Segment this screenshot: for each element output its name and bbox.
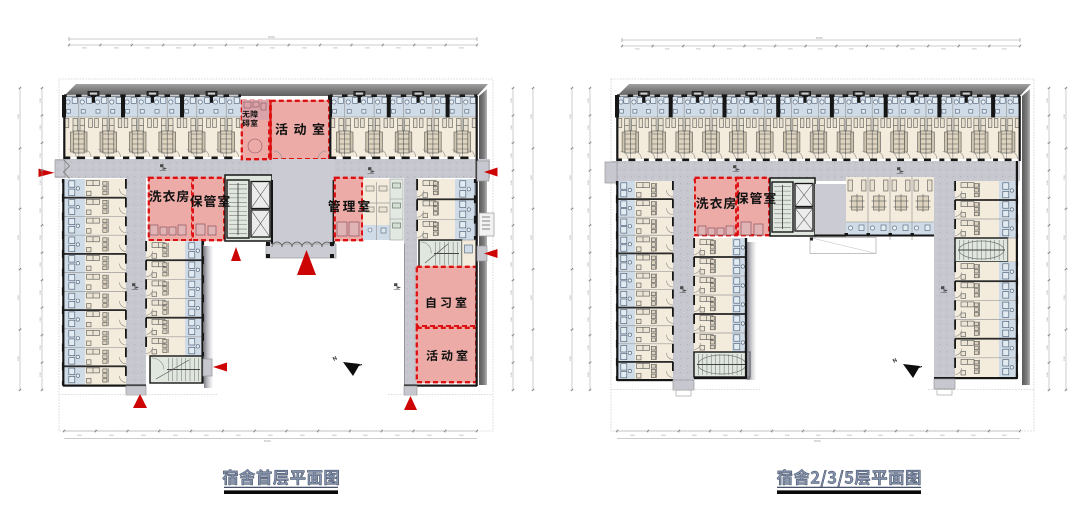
svg-text:3300: 3300 <box>1064 294 1066 300</box>
svg-text:3300: 3300 <box>40 371 42 377</box>
svg-text:3300: 3300 <box>511 261 513 267</box>
svg-text:3300: 3300 <box>588 124 590 130</box>
svg-text:3600: 3600 <box>754 435 760 437</box>
svg-text:3300: 3300 <box>531 113 533 119</box>
svg-text:3600: 3600 <box>1002 49 1008 51</box>
svg-text:3300: 3300 <box>588 344 590 350</box>
svg-text:3300: 3300 <box>40 97 42 103</box>
svg-text:3600: 3600 <box>630 435 636 437</box>
svg-text:3300: 3300 <box>18 174 20 180</box>
svg-text:3600: 3600 <box>661 435 667 437</box>
svg-text:3600: 3600 <box>363 435 369 437</box>
svg-text:3600: 3600 <box>173 435 179 437</box>
svg-text:3300: 3300 <box>1064 234 1066 240</box>
svg-text:3600: 3600 <box>204 435 210 437</box>
svg-text:3300: 3300 <box>570 234 572 240</box>
svg-text:3600: 3600 <box>1002 435 1008 437</box>
svg-text:3300: 3300 <box>588 261 590 267</box>
svg-text:3600: 3600 <box>332 435 338 437</box>
svg-text:3600: 3600 <box>459 48 465 50</box>
svg-text:3600: 3600 <box>878 435 884 437</box>
svg-text:3300: 3300 <box>588 316 590 322</box>
svg-text:3600: 3600 <box>818 49 824 51</box>
svg-text:3300: 3300 <box>531 355 533 361</box>
svg-text:3300: 3300 <box>511 344 513 350</box>
svg-text:50400: 50400 <box>814 440 821 443</box>
svg-text:3600: 3600 <box>239 48 245 50</box>
svg-text:3600: 3600 <box>141 435 147 437</box>
svg-text:3600: 3600 <box>459 435 465 437</box>
svg-text:3600: 3600 <box>880 49 886 51</box>
svg-text:3300: 3300 <box>511 316 513 322</box>
svg-text:3300: 3300 <box>1047 97 1049 103</box>
svg-text:3300: 3300 <box>1047 371 1049 377</box>
svg-text:3300: 3300 <box>40 179 42 185</box>
svg-text:3600: 3600 <box>847 435 853 437</box>
svg-text:3300: 3300 <box>511 179 513 185</box>
svg-text:3600: 3600 <box>145 48 151 50</box>
svg-text:3600: 3600 <box>971 435 977 437</box>
svg-text:3300: 3300 <box>18 294 20 300</box>
svg-text:3600: 3600 <box>365 48 371 50</box>
svg-text:3600: 3600 <box>909 435 915 437</box>
svg-text:3300: 3300 <box>18 113 20 119</box>
svg-text:3600: 3600 <box>665 49 671 51</box>
svg-text:3300: 3300 <box>1064 355 1066 361</box>
svg-text:3300: 3300 <box>570 355 572 361</box>
svg-text:3600: 3600 <box>427 48 433 50</box>
svg-text:3300: 3300 <box>570 174 572 180</box>
svg-text:3600: 3600 <box>268 435 274 437</box>
svg-text:3600: 3600 <box>635 49 641 51</box>
svg-text:3600: 3600 <box>910 49 916 51</box>
svg-text:3600: 3600 <box>696 49 702 51</box>
svg-text:3600: 3600 <box>849 49 855 51</box>
svg-text:3300: 3300 <box>588 179 590 185</box>
svg-text:3300: 3300 <box>570 294 572 300</box>
svg-text:3600: 3600 <box>816 435 822 437</box>
svg-text:3300: 3300 <box>511 124 513 130</box>
svg-text:3300: 3300 <box>40 124 42 130</box>
svg-text:3300: 3300 <box>531 294 533 300</box>
svg-text:3600: 3600 <box>176 48 182 50</box>
svg-text:3300: 3300 <box>1047 207 1049 213</box>
svg-text:3300: 3300 <box>40 261 42 267</box>
svg-text:3300: 3300 <box>18 234 20 240</box>
svg-text:50400: 50400 <box>816 37 823 40</box>
svg-text:3600: 3600 <box>114 48 120 50</box>
svg-text:3600: 3600 <box>302 48 308 50</box>
svg-text:3300: 3300 <box>588 97 590 103</box>
svg-text:3300: 3300 <box>511 289 513 295</box>
svg-text:3300: 3300 <box>1047 152 1049 158</box>
svg-text:3600: 3600 <box>788 49 794 51</box>
svg-text:3300: 3300 <box>1047 261 1049 267</box>
svg-text:3300: 3300 <box>40 344 42 350</box>
svg-text:3300: 3300 <box>1047 344 1049 350</box>
svg-text:3600: 3600 <box>236 435 242 437</box>
svg-text:3300: 3300 <box>588 152 590 158</box>
svg-text:3600: 3600 <box>300 435 306 437</box>
svg-text:3600: 3600 <box>940 435 946 437</box>
svg-text:3300: 3300 <box>1047 179 1049 185</box>
svg-text:50400: 50400 <box>264 440 271 443</box>
svg-text:3600: 3600 <box>427 435 433 437</box>
svg-text:3600: 3600 <box>757 49 763 51</box>
svg-text:3600: 3600 <box>692 435 698 437</box>
svg-text:3300: 3300 <box>1047 316 1049 322</box>
svg-text:3600: 3600 <box>396 48 402 50</box>
svg-text:3300: 3300 <box>570 113 572 119</box>
svg-text:3300: 3300 <box>511 234 513 240</box>
svg-text:3300: 3300 <box>588 207 590 213</box>
svg-text:3300: 3300 <box>40 234 42 240</box>
svg-text:3600: 3600 <box>109 435 115 437</box>
svg-text:3300: 3300 <box>1047 124 1049 130</box>
svg-text:3300: 3300 <box>511 97 513 103</box>
svg-text:3600: 3600 <box>270 48 276 50</box>
svg-text:3600: 3600 <box>785 435 791 437</box>
svg-text:3600: 3600 <box>941 49 947 51</box>
svg-text:3600: 3600 <box>723 435 729 437</box>
svg-text:3300: 3300 <box>531 234 533 240</box>
svg-text:3300: 3300 <box>40 207 42 213</box>
svg-text:3300: 3300 <box>588 289 590 295</box>
svg-text:3300: 3300 <box>1047 289 1049 295</box>
svg-text:3600: 3600 <box>77 435 83 437</box>
svg-text:3600: 3600 <box>333 48 339 50</box>
svg-text:3600: 3600 <box>82 48 88 50</box>
svg-text:3300: 3300 <box>1047 234 1049 240</box>
svg-text:3600: 3600 <box>208 48 214 50</box>
svg-text:3300: 3300 <box>588 234 590 240</box>
svg-text:3300: 3300 <box>40 152 42 158</box>
svg-text:3300: 3300 <box>511 207 513 213</box>
svg-text:3300: 3300 <box>588 371 590 377</box>
svg-text:3300: 3300 <box>1064 174 1066 180</box>
svg-text:3300: 3300 <box>511 152 513 158</box>
svg-text:3300: 3300 <box>531 174 533 180</box>
svg-text:3600: 3600 <box>972 49 978 51</box>
svg-text:50400: 50400 <box>268 36 275 39</box>
svg-text:3600: 3600 <box>727 49 733 51</box>
svg-text:3300: 3300 <box>1064 113 1066 119</box>
svg-text:3300: 3300 <box>18 355 20 361</box>
svg-text:3300: 3300 <box>40 316 42 322</box>
svg-text:3600: 3600 <box>395 435 401 437</box>
svg-text:3300: 3300 <box>511 371 513 377</box>
svg-text:3300: 3300 <box>40 289 42 295</box>
